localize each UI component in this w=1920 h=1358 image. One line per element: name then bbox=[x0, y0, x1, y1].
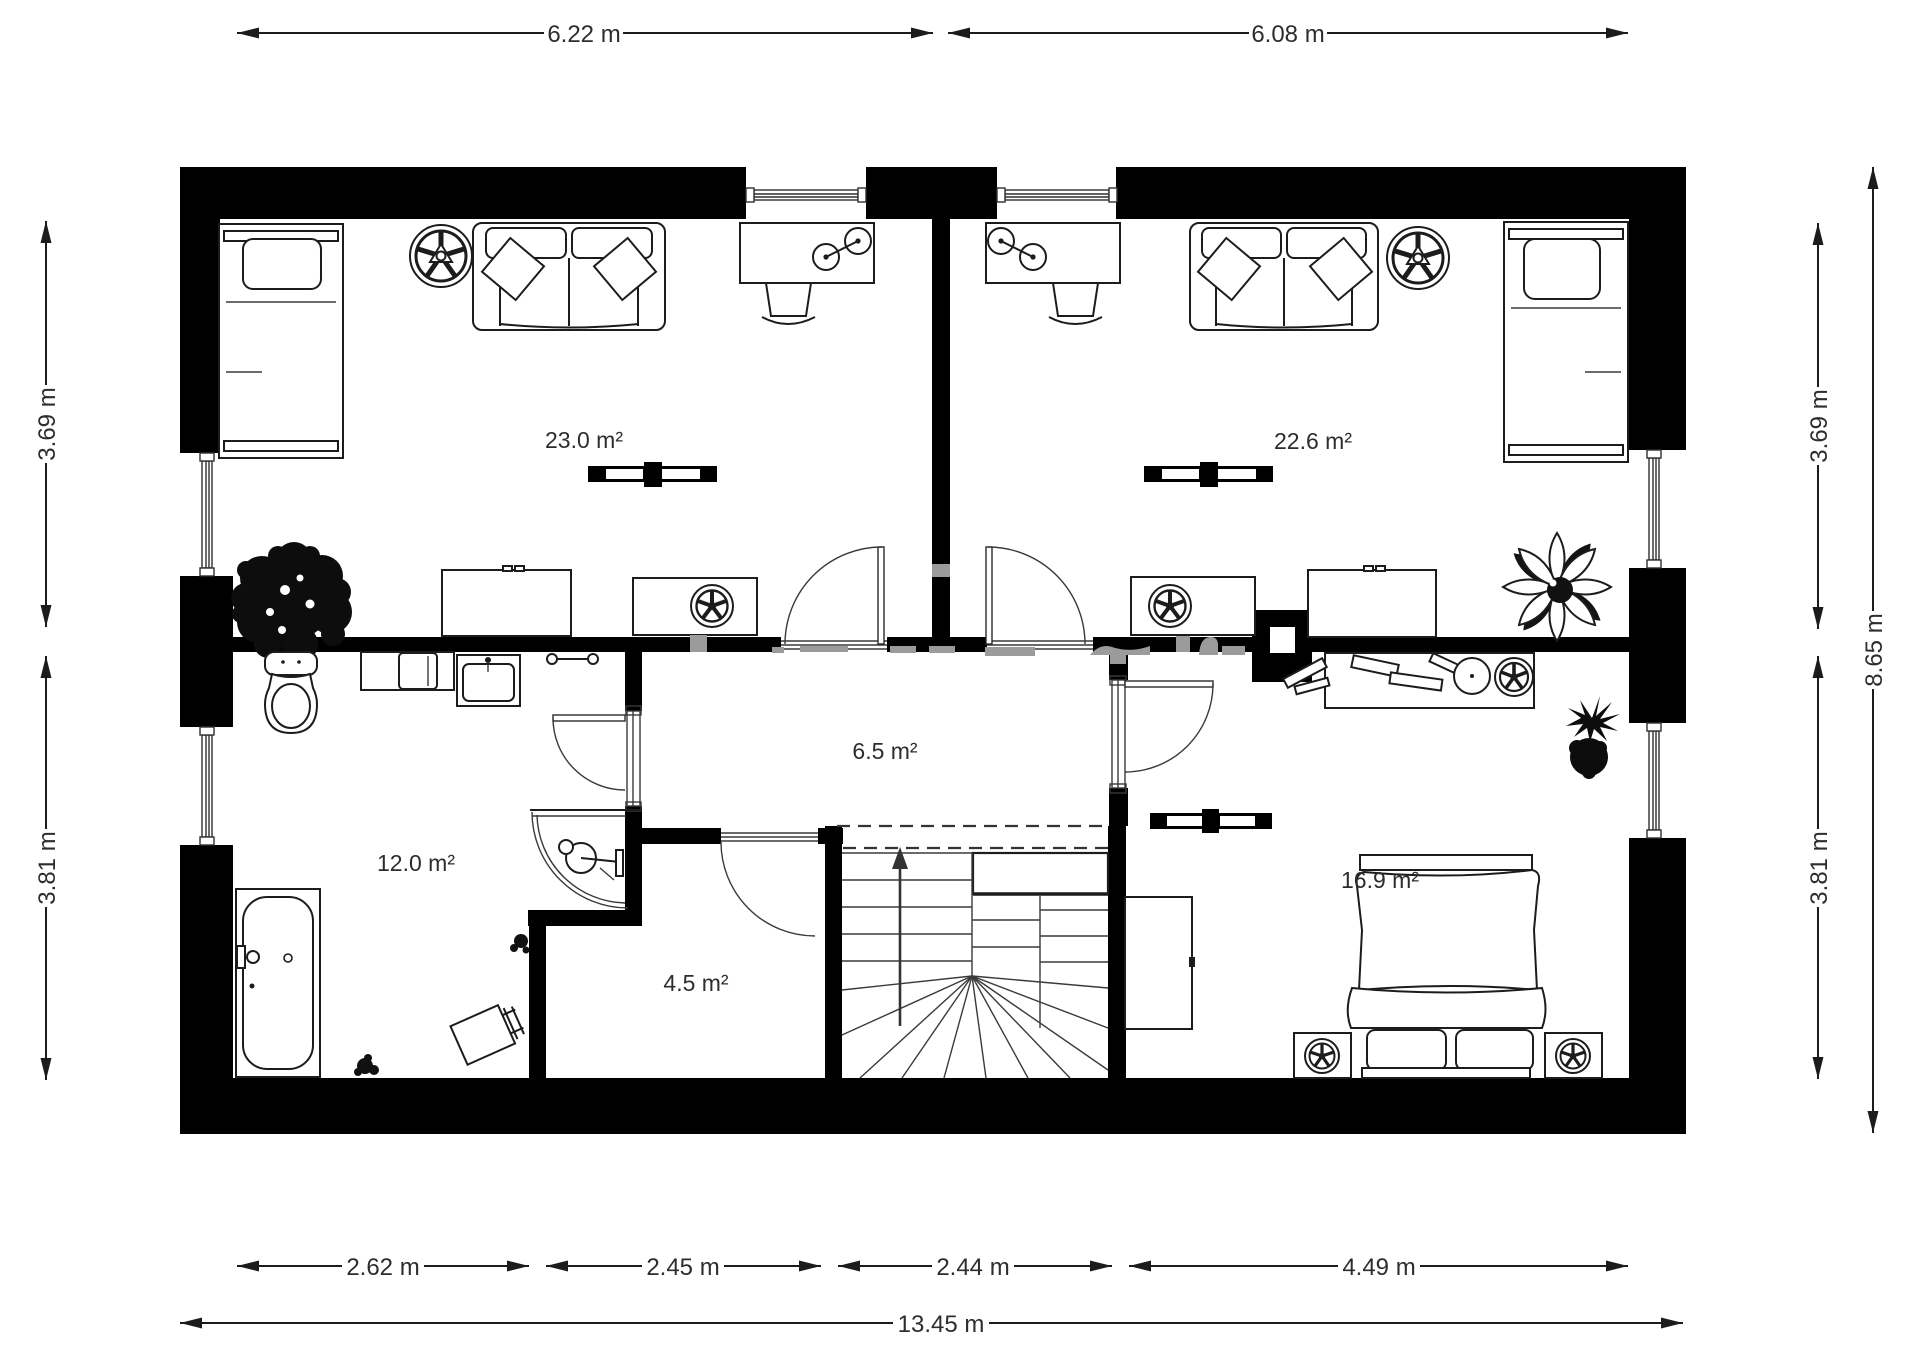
svg-text:3.81 m: 3.81 m bbox=[34, 831, 61, 904]
svg-text:6.22 m: 6.22 m bbox=[547, 21, 620, 48]
svg-text:12.0 m²: 12.0 m² bbox=[377, 850, 455, 876]
svg-text:2.62 m: 2.62 m bbox=[346, 1254, 419, 1281]
svg-text:4.49 m: 4.49 m bbox=[1342, 1254, 1415, 1281]
svg-text:6.5 m²: 6.5 m² bbox=[852, 738, 918, 764]
svg-text:23.0 m²: 23.0 m² bbox=[545, 427, 623, 453]
svg-text:22.6 m²: 22.6 m² bbox=[1274, 428, 1352, 454]
svg-text:6.08 m: 6.08 m bbox=[1251, 21, 1324, 48]
svg-text:2.44 m: 2.44 m bbox=[936, 1254, 1009, 1281]
svg-text:2.45 m: 2.45 m bbox=[646, 1254, 719, 1281]
svg-text:8.65 m: 8.65 m bbox=[1861, 613, 1888, 686]
svg-text:3.69 m: 3.69 m bbox=[34, 387, 61, 460]
svg-text:3.81 m: 3.81 m bbox=[1806, 831, 1833, 904]
svg-text:16.9 m²: 16.9 m² bbox=[1341, 867, 1419, 893]
svg-text:13.45 m: 13.45 m bbox=[898, 1311, 985, 1338]
svg-text:3.69 m: 3.69 m bbox=[1806, 389, 1833, 462]
svg-text:4.5 m²: 4.5 m² bbox=[663, 970, 729, 996]
